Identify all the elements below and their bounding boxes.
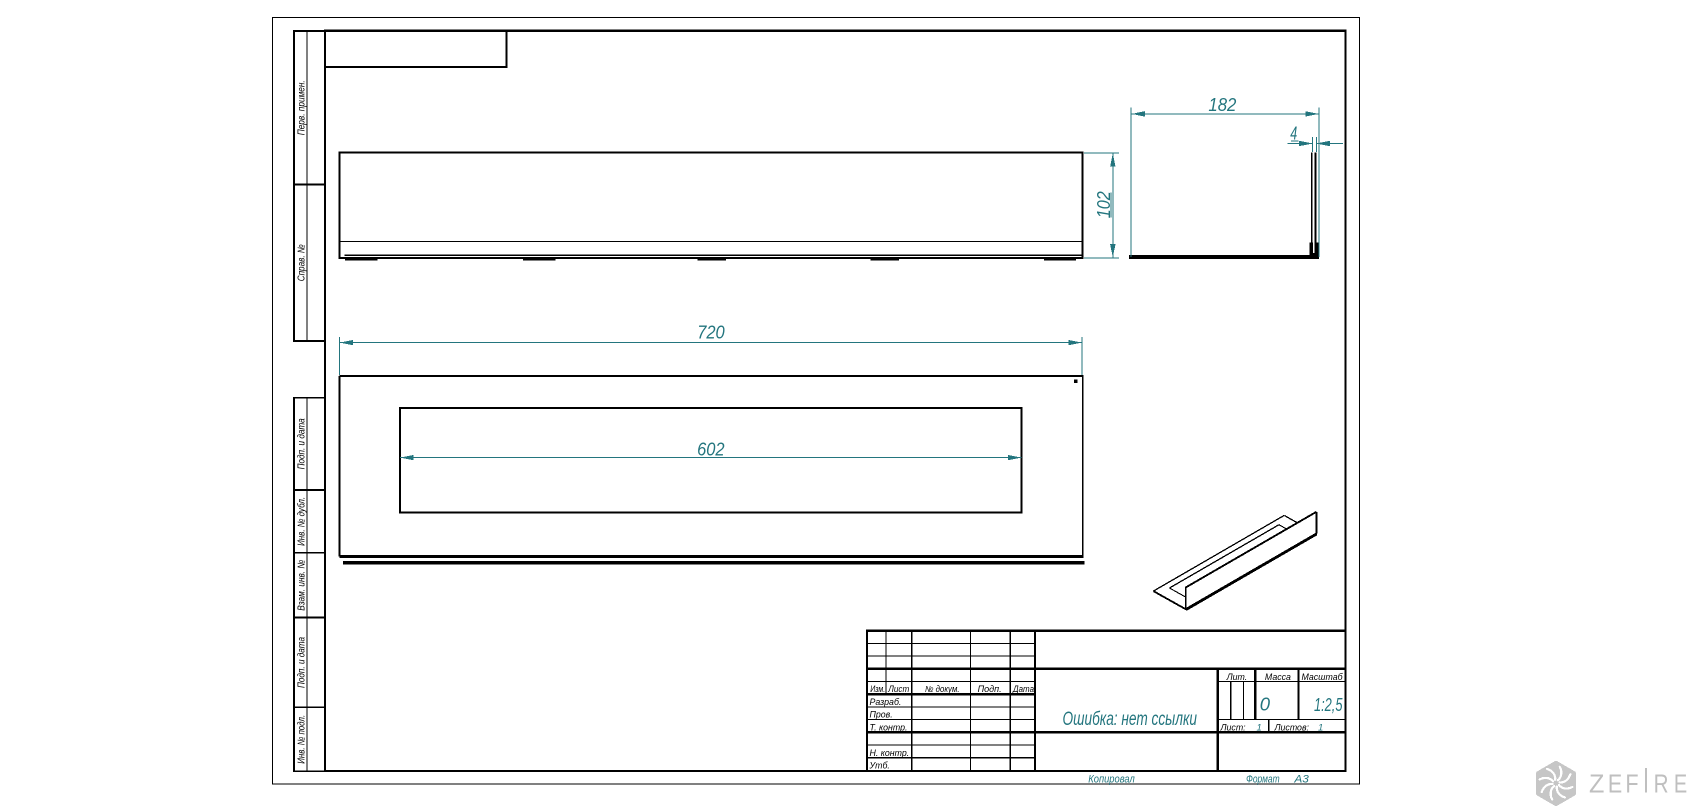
svg-text:Копировал: Копировал	[1088, 773, 1135, 785]
svg-text:1: 1	[1257, 723, 1262, 734]
svg-text:Масштаб: Масштаб	[1301, 672, 1343, 682]
svg-text:Взам. инв. №: Взам. инв. №	[297, 560, 308, 611]
svg-text:Формат: Формат	[1246, 773, 1280, 785]
svg-text:F: F	[1625, 769, 1638, 799]
svg-text:720: 720	[697, 323, 725, 343]
svg-text:Разраб.: Разраб.	[870, 697, 902, 707]
svg-text:E: E	[1608, 769, 1622, 799]
svg-text:Пров.: Пров.	[870, 710, 893, 720]
svg-text:Лист: Лист	[887, 684, 909, 694]
svg-text:Утб.: Утб.	[869, 761, 890, 771]
svg-text:№ докум.: № докум.	[925, 684, 960, 694]
svg-text:Листов:: Листов:	[1274, 723, 1310, 733]
svg-text:Лист:: Лист:	[1220, 723, 1247, 733]
svg-text:Подп.: Подп.	[978, 684, 1002, 694]
svg-text:0: 0	[1260, 694, 1271, 715]
svg-text:Н. контр.: Н. контр.	[870, 748, 910, 758]
svg-text:R: R	[1654, 769, 1669, 799]
svg-text:Подп. и дата: Подп. и дата	[297, 637, 308, 688]
svg-text:Масса: Масса	[1265, 672, 1291, 682]
svg-text:Изм.: Изм.	[870, 684, 885, 694]
svg-text:А3: А3	[1293, 773, 1310, 785]
svg-text:Инв. № подл.: Инв. № подл.	[297, 715, 308, 764]
svg-text:Справ. №: Справ. №	[297, 244, 308, 281]
svg-text:1: 1	[1318, 723, 1323, 734]
svg-text:E: E	[1674, 769, 1687, 799]
svg-text:182: 182	[1208, 95, 1236, 115]
svg-text:Лит.: Лит.	[1226, 672, 1248, 682]
svg-text:Подп. и дата: Подп. и дата	[297, 418, 308, 469]
svg-text:Ошибка: нет ссылки: Ошибка: нет ссылки	[1063, 709, 1198, 730]
svg-text:Z: Z	[1589, 769, 1605, 799]
svg-text:Дата: Дата	[1012, 684, 1034, 694]
svg-text:1:2,5: 1:2,5	[1314, 694, 1343, 715]
svg-text:Перв. примен.: Перв. примен.	[297, 80, 308, 135]
svg-text:602: 602	[697, 439, 725, 459]
svg-text:Т. контр.: Т. контр.	[870, 722, 908, 732]
svg-text:Инв. № дубл.: Инв. № дубл.	[296, 497, 308, 546]
